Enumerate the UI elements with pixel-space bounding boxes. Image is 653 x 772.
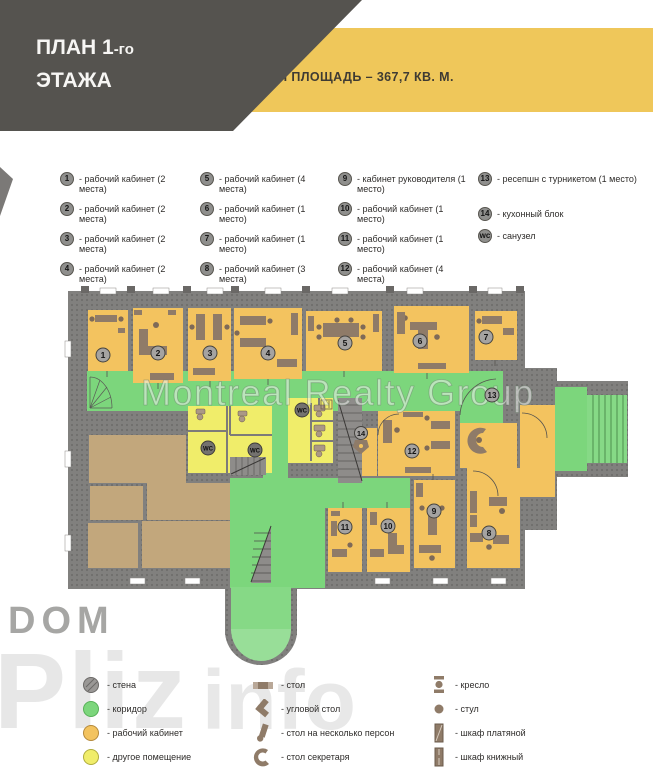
corner-desk-icon: [252, 699, 274, 719]
svg-text:14: 14: [357, 429, 366, 438]
chair-icon: [430, 700, 448, 718]
other-room-b: [90, 486, 143, 520]
badge-room-14: 14: [355, 427, 368, 440]
legend-item-11: 11- рабочий кабинет (1 место): [338, 232, 472, 254]
room-legend-col3: 9- кабинет руководителя (1 место) 10- ра…: [338, 172, 472, 292]
badge-wc-center: WC: [295, 403, 309, 417]
badge-room-6: 6: [413, 334, 427, 348]
badge-room-12: 12: [405, 444, 419, 458]
room-number-badge: 3: [60, 232, 74, 246]
symbol-legend-col3: - кресло - стул - шкаф платяной - шкаф к…: [430, 676, 526, 772]
room-legend-col1: 1- рабочий кабинет (2 места) 2- рабочий …: [60, 172, 194, 292]
room-number-badge: 14: [478, 207, 492, 221]
east-porch: [555, 387, 587, 471]
other-room-c: [147, 483, 230, 520]
other-room-d: [88, 523, 138, 568]
legend-bookcase: - шкаф книжный: [430, 748, 526, 766]
room-number-badge: 13: [478, 172, 492, 186]
legend-wardrobe: - шкаф платяной: [430, 724, 526, 742]
room-number-badge: 1: [60, 172, 74, 186]
svg-text:7: 7: [484, 332, 489, 342]
page-title: ПЛАН 1-го ЭТАЖА: [36, 32, 134, 96]
legend-item-10: 10- рабочий кабинет (1 место): [338, 202, 472, 224]
svg-text:11: 11: [341, 523, 350, 532]
svg-text:1: 1: [101, 350, 106, 360]
room-number-badge: 5: [200, 172, 214, 186]
legend-item-3: 3- рабочий кабинет (2 места): [60, 232, 194, 254]
svg-text:8: 8: [487, 528, 492, 538]
room-number-badge: 10: [338, 202, 352, 216]
wc-badge: wc: [478, 229, 492, 243]
legend-item-1: 1- рабочий кабинет (2 места): [60, 172, 194, 194]
legend-item-9: 9- кабинет руководителя (1 место): [338, 172, 472, 194]
other-room-a: [89, 435, 186, 483]
badge-wc-west-2: WC: [248, 443, 262, 457]
room-number-badge: 7: [200, 232, 214, 246]
legend-corridor: - коридор: [82, 700, 191, 718]
svg-text:9: 9: [432, 506, 437, 516]
multi-person-desk-icon: [252, 723, 274, 743]
svg-text:WC: WC: [203, 447, 214, 453]
svg-text:6: 6: [418, 336, 423, 346]
secretary-desk-icon: [252, 747, 274, 767]
symbol-legend-col1: - стена - коридор - рабочий кабинет - др…: [82, 676, 191, 772]
office-swatch-icon: [82, 724, 100, 742]
svg-text:4: 4: [266, 348, 271, 358]
legend-item-6: 6- рабочий кабинет (1 место): [200, 202, 334, 224]
badge-room-7: 7: [479, 330, 493, 344]
room-number-badge: 12: [338, 262, 352, 276]
other-room-e: [142, 521, 230, 568]
legend-item-4: 4- рабочий кабинет (2 места): [60, 262, 194, 284]
badge-room-1: 1: [96, 348, 110, 362]
legend-item-8: 8- рабочий кабинет (3 места): [200, 262, 334, 284]
desk-icon: [252, 676, 274, 694]
svg-text:2: 2: [156, 348, 161, 358]
legend-item-12: 12- рабочий кабинет (4 места): [338, 262, 472, 284]
corridor-swatch-icon: [82, 700, 100, 718]
svg-text:WC: WC: [250, 449, 261, 455]
badge-room-13: 13: [485, 388, 499, 402]
room-number-badge: 8: [200, 262, 214, 276]
badge-room-9: 9: [427, 504, 441, 518]
decorative-sliver: [0, 167, 13, 216]
south-porch: [231, 587, 291, 631]
legend-corner-desk: - угловой стол: [252, 700, 394, 718]
badge-room-5: 5: [338, 336, 352, 350]
room-number-badge: 4: [60, 262, 74, 276]
room-number-badge: 9: [338, 172, 352, 186]
legend-item-14: 14- кухонный блок: [478, 207, 638, 221]
legend-wall: - стена: [82, 676, 191, 694]
legend-item-7: 7- рабочий кабинет (1 место): [200, 232, 334, 254]
svg-text:12: 12: [408, 447, 417, 456]
badge-room-11: 11: [338, 520, 352, 534]
badge-room-10: 10: [381, 519, 395, 533]
room-11: [328, 508, 362, 572]
room-number-badge: 11: [338, 232, 352, 246]
legend-secretary-desk: - стол секретаря: [252, 748, 394, 766]
room-legend-col2: 5- рабочий кабинет (4 места) 6- рабочий …: [200, 172, 334, 292]
badge-room-8: 8: [482, 526, 496, 540]
room-legend-col4: 13- ресепшн с турникетом (1 место) 14- к…: [478, 172, 638, 251]
legend-item-5: 5- рабочий кабинет (4 места): [200, 172, 334, 194]
wall-swatch-icon: [82, 676, 100, 694]
legend-item-wc: wc- санузел: [478, 229, 638, 243]
svg-text:10: 10: [384, 522, 393, 531]
legend-office: - рабочий кабинет: [82, 724, 191, 742]
svg-text:WC: WC: [297, 409, 308, 415]
legend-multi-desk: - стол на несколько персон: [252, 724, 394, 742]
badge-room-3: 3: [203, 346, 217, 360]
symbol-legend-col2: - стол - угловой стол - стол на нескольк…: [252, 676, 394, 772]
armchair-icon: [430, 675, 448, 695]
legend-armchair: - кресло: [430, 676, 526, 694]
wardrobe-icon: [430, 723, 448, 743]
west-mini-stairs: [230, 457, 266, 475]
other-room-swatch-icon: [82, 748, 100, 766]
room-number-badge: 6: [200, 202, 214, 216]
badge-room-2: 2: [151, 346, 165, 360]
badge-wc-west-1: WC: [201, 441, 215, 455]
watermark-realty: Montreal Realty Group: [141, 372, 535, 413]
legend-desk: - стол: [252, 676, 394, 694]
svg-text:13: 13: [488, 391, 497, 400]
svg-text:5: 5: [343, 338, 348, 348]
svg-text:3: 3: [208, 348, 213, 358]
bookcase-icon: [430, 747, 448, 767]
legend-item-13: 13- ресепшн с турникетом (1 место): [478, 172, 638, 186]
legend-chair: - стул: [430, 700, 526, 718]
badge-room-4: 4: [261, 346, 275, 360]
legend-other-room: - другое помещение: [82, 748, 191, 766]
room-number-badge: 2: [60, 202, 74, 216]
legend-item-2: 2- рабочий кабинет (2 места): [60, 202, 194, 224]
floor-plan: Montreal Realty Group 1 2 3 4 5 6 7 8 9 …: [55, 283, 640, 675]
